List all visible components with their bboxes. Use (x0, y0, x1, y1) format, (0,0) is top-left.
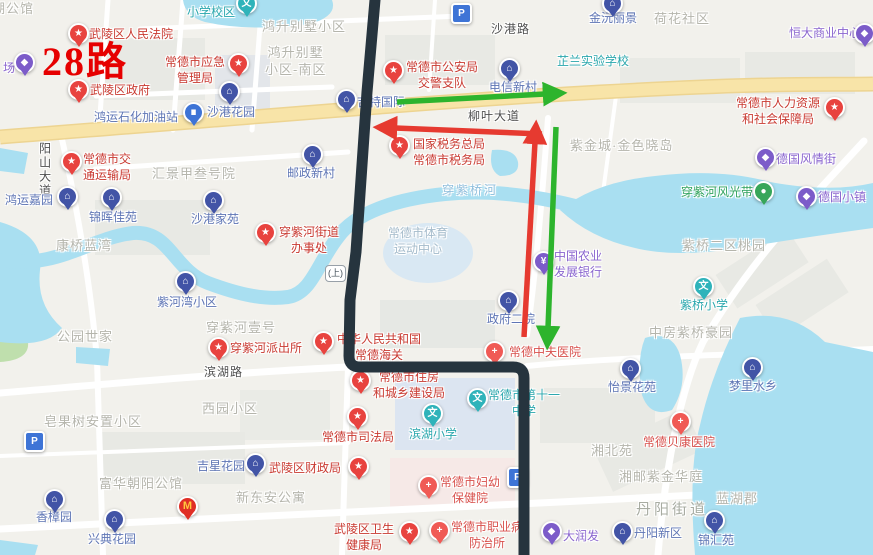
residence-pin-icon[interactable]: ⌂ (203, 190, 224, 211)
government-pin-icon[interactable]: ★ (399, 521, 420, 542)
hospital-pin-icon[interactable]: + (670, 411, 691, 432)
district-name-label: 中房紫桥豪园 (649, 325, 733, 342)
government-pin-icon[interactable]: ★ (313, 331, 334, 352)
poi-label[interactable]: 小学校区 (187, 5, 235, 21)
scenic-pin-icon[interactable]: ● (753, 181, 774, 202)
government-pin-icon[interactable]: ★ (824, 97, 845, 118)
government-pin-icon[interactable]: ★ (383, 60, 404, 81)
school-pin-icon[interactable]: 文 (693, 276, 714, 297)
district-name-label: 西园小区 (202, 401, 258, 418)
water-name-label: 穿紫桥河 (442, 183, 498, 199)
road-name-label: 阳山大道 (36, 142, 52, 198)
bank-pin-icon[interactable]: ¥ (533, 251, 554, 272)
poi-label[interactable]: 武陵区财政局 (269, 461, 341, 477)
government-pin-icon[interactable]: ★ (350, 370, 371, 391)
bridge-badge: (上) (325, 265, 346, 282)
poi-label[interactable]: 吉特国际 (357, 95, 405, 111)
government-pin-icon[interactable]: ★ (68, 79, 89, 100)
residence-pin-icon[interactable]: ⌂ (620, 358, 641, 379)
route-number-label: 28路 (42, 36, 128, 88)
district-name-label: 皂果树安置小区 (44, 414, 142, 431)
poi-label[interactable]: 常德市人力资源 和社会保障局 (736, 96, 820, 127)
government-pin-icon[interactable]: ★ (389, 135, 410, 156)
district-name-label: 富华朝阳公馆 (99, 476, 183, 493)
hospital-pin-icon[interactable]: + (484, 341, 505, 362)
government-pin-icon[interactable]: ★ (228, 53, 249, 74)
school-pin-icon[interactable]: 文 (236, 0, 257, 14)
poi-label[interactable]: 常德市妇幼 保健院 (440, 475, 500, 506)
district-name-label: 康桥蓝湾 (56, 238, 112, 255)
road-name-label: 滨湖路 (204, 365, 243, 381)
district-name-label: 汇景甲叁号院 (152, 166, 236, 183)
school-pin-icon[interactable]: 文 (422, 403, 443, 424)
map-labels-layer: 湖公馆场◆28路武陵区人民法院★常德市应急 管理局★武陵区政府★鸿运石化加油站∎… (0, 0, 873, 555)
poi-label[interactable]: 大润发 (563, 529, 599, 545)
poi-label[interactable]: 常德中夫医院 (509, 345, 581, 361)
shopping-pin-icon[interactable]: ◆ (755, 147, 776, 168)
poi-label[interactable]: 丹阳新区 (634, 526, 682, 542)
poi-label[interactable]: 穿紫河风光带 (681, 185, 753, 201)
district-name-label: 紫桥二区桃园 (682, 238, 766, 255)
school-pin-icon[interactable]: 文 (467, 388, 488, 409)
map-canvas[interactable]: 湖公馆场◆28路武陵区人民法院★常德市应急 管理局★武陵区政府★鸿运石化加油站∎… (0, 0, 873, 555)
poi-label[interactable]: 常德市交 通运输局 (83, 152, 131, 183)
poi-label[interactable]: 武陵区人民法院 (89, 27, 173, 43)
residence-pin-icon[interactable]: ⌂ (612, 521, 633, 542)
parking-icon[interactable]: P (507, 467, 528, 488)
poi-label[interactable]: 常德市第十一 中学 (488, 388, 560, 419)
poi-label[interactable]: 德国风情街 (776, 152, 836, 168)
poi-label[interactable]: 芷兰实验学校 (557, 54, 629, 70)
district-name-label: 新东安公寓 (236, 490, 306, 507)
shopping-pin-icon[interactable]: ◆ (854, 23, 873, 44)
poi-label[interactable]: 穿紫河街道 办事处 (279, 225, 339, 256)
district-name-label: 鸿升别墅 小区-南区 (265, 45, 326, 79)
residence-pin-icon[interactable]: ⌂ (44, 489, 65, 510)
district-name-label: 湘北苑 (591, 443, 633, 460)
government-pin-icon[interactable]: ★ (68, 23, 89, 44)
residence-pin-icon[interactable]: ⌂ (219, 81, 240, 102)
district-name-label: 公园世家 (57, 329, 113, 346)
government-pin-icon[interactable]: ★ (61, 151, 82, 172)
parking-icon[interactable]: P (24, 431, 45, 452)
parking-icon[interactable]: P (451, 3, 472, 24)
poi-label[interactable]: 武陵区卫生 健康局 (334, 522, 394, 553)
residence-pin-icon[interactable]: ⌂ (101, 187, 122, 208)
government-pin-icon[interactable]: ★ (347, 406, 368, 427)
residence-pin-icon[interactable]: ⌂ (104, 509, 125, 530)
poi-label[interactable]: 国家税务总局 常德市税务局 (413, 137, 485, 168)
road-name-label: 柳叶大道 (468, 109, 520, 125)
poi-label[interactable]: 穿紫河派出所 (230, 341, 302, 357)
poi-label[interactable]: 中国农业 发展银行 (554, 249, 602, 280)
district-name-label: 湘邮紫金华庭 (619, 469, 703, 486)
shopping-pin-icon[interactable]: ◆ (541, 521, 562, 542)
poi-label[interactable]: 恒大商业中心 (789, 26, 861, 42)
residence-pin-icon[interactable]: ⌂ (499, 58, 520, 79)
shopping-pin-icon[interactable]: ◆ (796, 186, 817, 207)
poi-label[interactable]: 常德市住房 和城乡建设局 (373, 370, 445, 401)
poi-label[interactable]: 吉星花园 (197, 459, 245, 475)
government-pin-icon[interactable]: ★ (208, 337, 229, 358)
residence-pin-icon[interactable]: ⌂ (498, 290, 519, 311)
gas-station-pin-icon[interactable]: ∎ (183, 102, 204, 123)
residence-pin-icon[interactable]: ⌂ (704, 510, 725, 531)
shopping-pin-icon[interactable]: ◆ (14, 52, 35, 73)
district-name-label: 穿紫河壹号 (206, 320, 276, 337)
district-name-label: 鸿升别墅小区 (262, 19, 346, 36)
poi-label[interactable]: 武陵区政府 (90, 83, 150, 99)
district-name-label: 丹阳街道 (636, 500, 708, 520)
district-name-label: 湖公馆 (0, 1, 34, 18)
residence-pin-icon[interactable]: ⌂ (336, 89, 357, 110)
poi-label[interactable]: 鸿运石化加油站 (94, 110, 178, 126)
poi-label[interactable]: 中华人民共和国 常德海关 (337, 332, 421, 363)
poi-label[interactable]: 常德市公安局 交警支队 (406, 60, 478, 91)
government-pin-icon[interactable]: ★ (255, 222, 276, 243)
district-name-label: 紫金城·金色晓岛 (570, 138, 673, 155)
residence-pin-icon[interactable]: ⌂ (175, 271, 196, 292)
poi-label[interactable]: 常德市职业病 防治所 (451, 520, 523, 551)
residence-pin-icon[interactable]: ⌂ (302, 144, 323, 165)
district-name-label: 荷花社区 (654, 11, 710, 28)
residence-pin-icon[interactable]: ⌂ (742, 357, 763, 378)
residence-pin-icon[interactable]: ⌂ (57, 186, 78, 207)
hospital-pin-icon[interactable]: + (418, 475, 439, 496)
government-pin-icon[interactable]: ★ (348, 456, 369, 477)
poi-label[interactable]: 鸿运嘉园 (5, 193, 53, 209)
district-name-label: 蓝湖郡 (716, 491, 758, 508)
poi-label[interactable]: 德国小镇 (818, 190, 866, 206)
district-name-label: 常德市体育 运动中心 (388, 226, 448, 257)
road-name-label: 沙港路 (491, 22, 530, 38)
mcdonalds-pin-icon[interactable]: M (177, 496, 198, 517)
poi-label[interactable]: 常德市应急 管理局 (165, 55, 225, 86)
residence-pin-icon[interactable]: ⌂ (245, 453, 266, 474)
hospital-pin-icon[interactable]: + (429, 520, 450, 541)
